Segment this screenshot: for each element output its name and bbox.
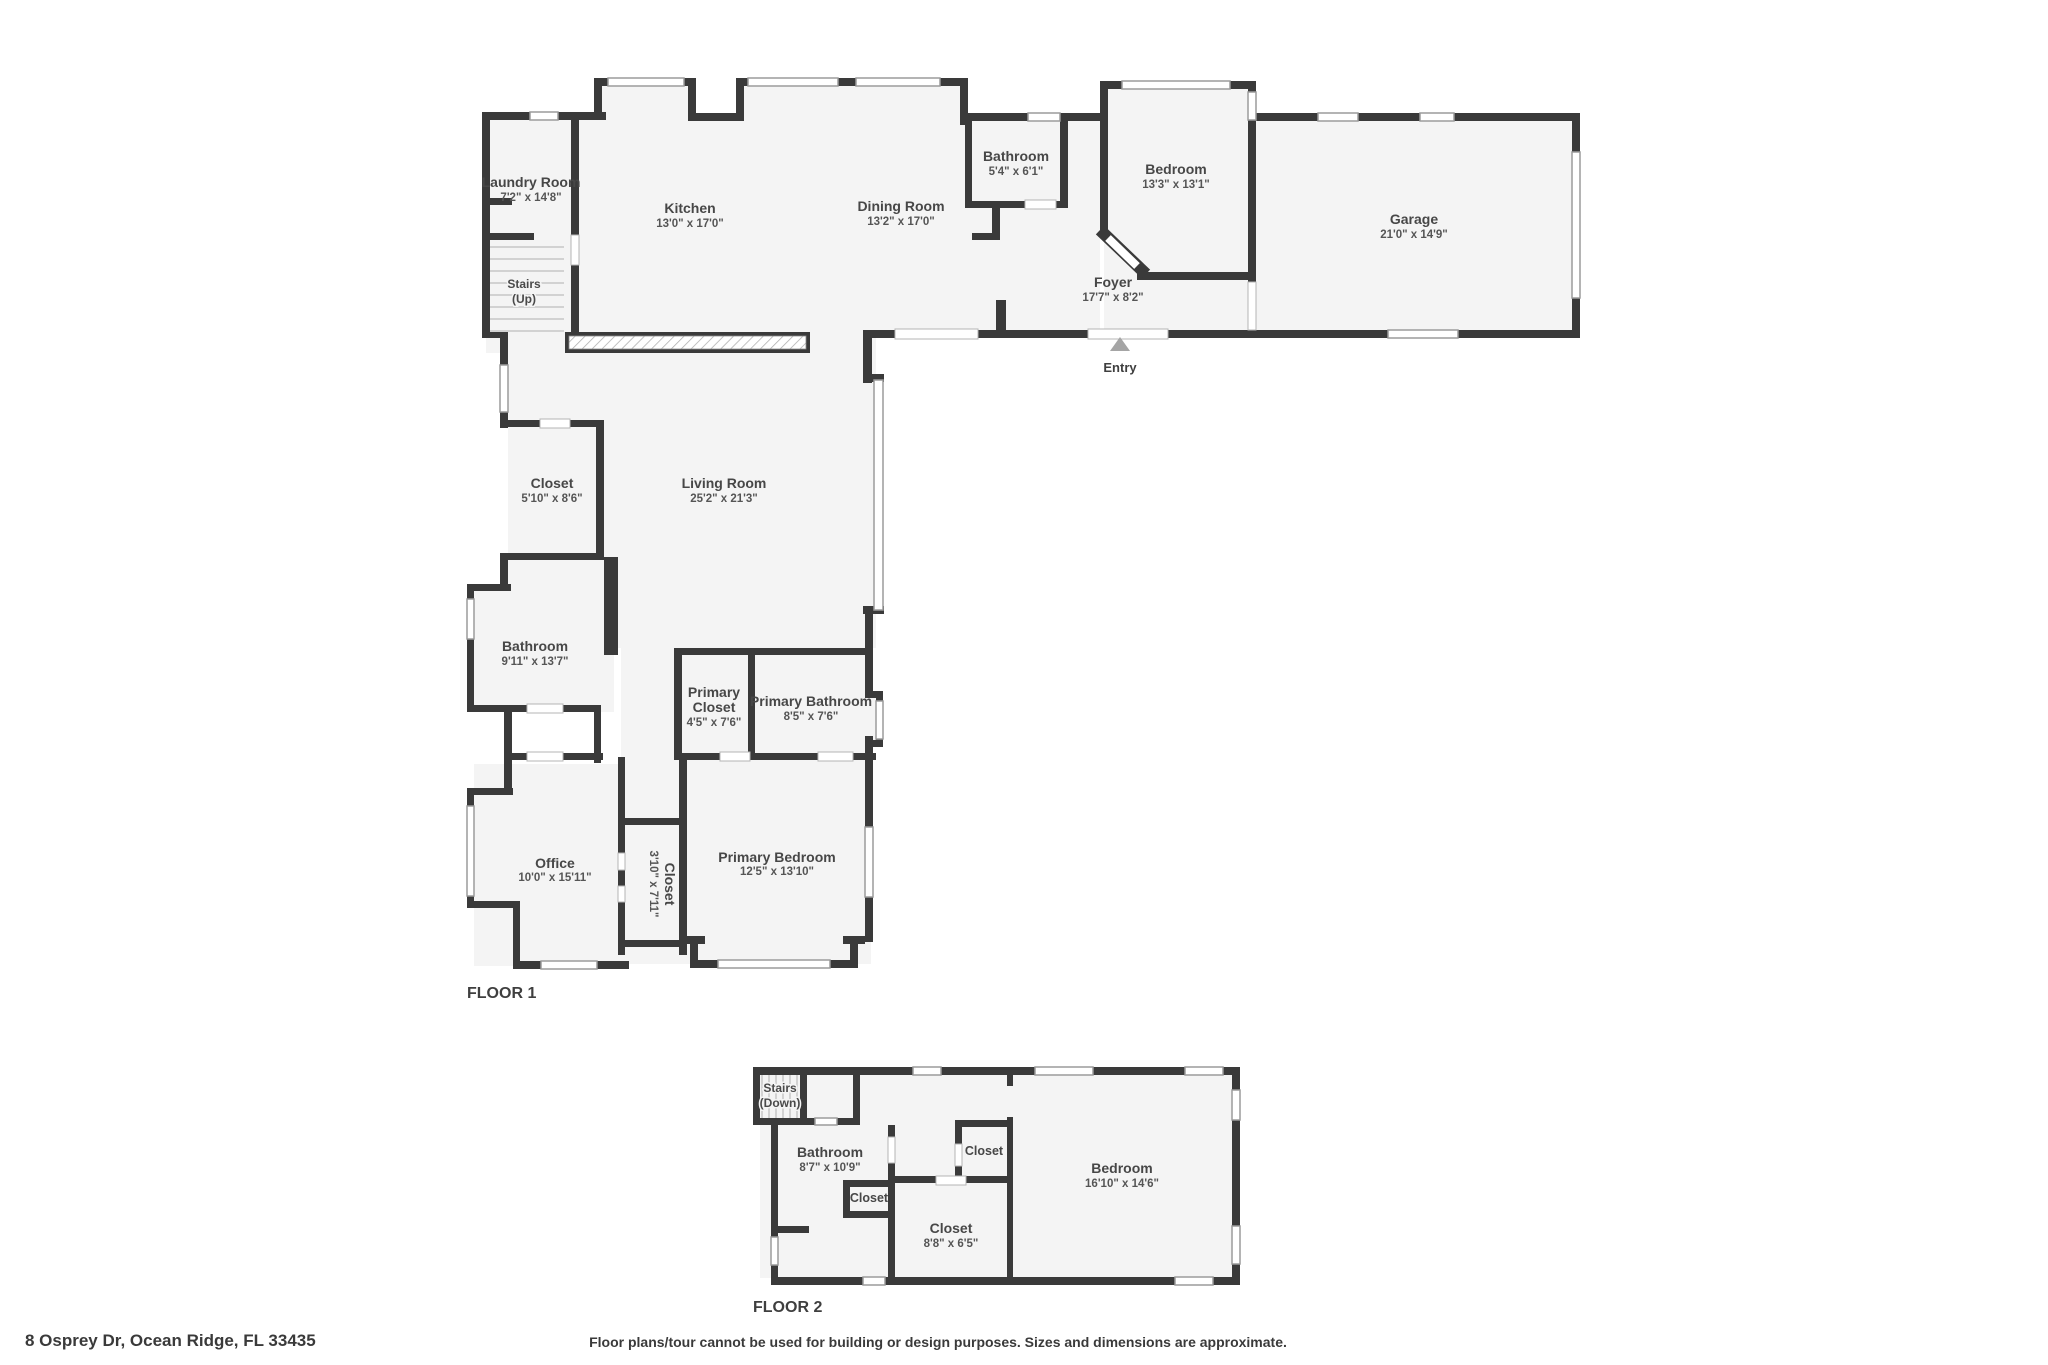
- office-dims: 10'0" x 15'11": [518, 872, 591, 884]
- bedroom-label: Bedroom: [1145, 161, 1206, 177]
- kitchen-counter: [565, 332, 810, 353]
- bathroom-left-label: Bathroom: [502, 638, 568, 654]
- primary-closet-label-line2: Closet: [693, 699, 736, 715]
- floorplan-canvas: Laundry Room 7'2" x 14'8" Stairs (Up) Ki…: [0, 0, 2048, 1365]
- primary-bedroom-dims: 12'5" x 13'10": [740, 866, 814, 878]
- closet-main-f2-label: Closet: [930, 1220, 973, 1236]
- bedroom-dims: 13'3" x 13'1": [1142, 179, 1210, 191]
- bathroom-left-dims: 9'11" x 13'7": [502, 656, 569, 668]
- primary-closet-label-line1: Primary: [688, 684, 740, 700]
- bathroom-top-label: Bathroom: [983, 148, 1049, 164]
- office-label: Office: [535, 855, 575, 871]
- garage-dims: 21'0" x 14'9": [1380, 229, 1448, 241]
- floor2-floor-areas: [758, 1072, 1233, 1278]
- laundry-room-dims: 7'2" x 14'8": [500, 192, 561, 204]
- stairs-up-direction: (Up): [512, 292, 536, 306]
- foyer-label: Foyer: [1094, 274, 1133, 290]
- dining-room-dims: 13'2" x 17'0": [867, 216, 935, 228]
- closet-vertical-label: Closet: [662, 863, 678, 906]
- stairs-down-label: Stairs: [763, 1081, 797, 1095]
- bathroom-top-dims: 5'4" x 6'1": [989, 166, 1044, 178]
- primary-closet-dims: 4'5" x 7'6": [687, 717, 742, 729]
- bathroom-f2-dims: 8'7" x 10'9": [799, 1162, 860, 1174]
- stairs-down-direction: (Down): [760, 1096, 801, 1110]
- laundry-room-label: Laundry Room: [482, 174, 581, 190]
- closet-main-f2-dims: 8'8" x 6'5": [924, 1238, 979, 1250]
- bedroom-f2-dims: 16'10" x 14'6": [1085, 1178, 1159, 1190]
- floor1-plan: Laundry Room 7'2" x 14'8" Stairs (Up) Ki…: [467, 78, 1580, 1002]
- kitchen-dims: 13'0" x 17'0": [656, 218, 724, 230]
- living-room-dims: 25'2" x 21'3": [690, 493, 758, 505]
- bathroom-f2-label: Bathroom: [797, 1144, 863, 1160]
- primary-bathroom-dims: 8'5" x 7'6": [784, 711, 839, 723]
- floor1-title: FLOOR 1: [467, 985, 536, 1002]
- primary-bathroom-label: Primary Bathroom: [750, 693, 872, 709]
- property-address: 8 Osprey Dr, Ocean Ridge, FL 33435: [25, 1331, 316, 1351]
- floor2-plan: Stairs (Down) Bathroom 8'7" x 10'9" Clos…: [753, 1067, 1240, 1316]
- closet-left-f2-label: Closet: [850, 1191, 889, 1205]
- closet-hall-dims: 5'10" x 8'6": [521, 493, 582, 505]
- entry-label: Entry: [1103, 360, 1137, 375]
- bedroom-f2-label: Bedroom: [1091, 1160, 1152, 1176]
- floorplan-disclaimer: Floor plans/tour cannot be used for buil…: [589, 1334, 1287, 1350]
- closet-hall-label: Closet: [531, 475, 574, 491]
- dining-room-label: Dining Room: [857, 198, 944, 214]
- primary-bedroom-label: Primary Bedroom: [718, 849, 835, 865]
- stairs-up-label: Stairs: [507, 277, 541, 291]
- closet-top-f2-label: Closet: [965, 1144, 1004, 1158]
- kitchen-label: Kitchen: [664, 200, 715, 216]
- living-room-label: Living Room: [682, 475, 767, 491]
- closet-vertical-dims: 3'10" x 7'11": [647, 851, 659, 918]
- garage-label: Garage: [1390, 211, 1438, 227]
- floor2-title: FLOOR 2: [753, 1299, 822, 1316]
- foyer-dims: 17'7" x 8'2": [1082, 292, 1143, 304]
